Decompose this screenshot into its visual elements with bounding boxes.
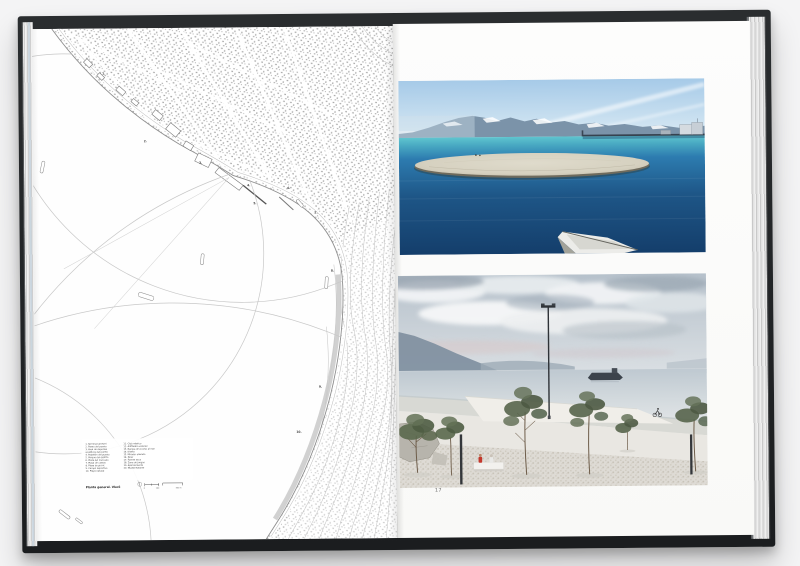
- svg-text:4.: 4.: [247, 183, 250, 187]
- svg-text:3.: 3.: [199, 161, 202, 165]
- map-caption: Planta general. Vlorë: [86, 485, 121, 489]
- svg-text:10.: 10.: [296, 430, 301, 434]
- svg-text:10. Playa natural: 10. Playa natural: [86, 470, 105, 473]
- person-red-jacket: [479, 457, 483, 463]
- left-page: 1.2.3.4.5.6.7.8.9.10. 1. Terminal del fe…: [32, 26, 397, 541]
- terminal-building: [680, 124, 693, 134]
- person-white-jacket: [490, 457, 494, 463]
- svg-text:8.: 8.: [331, 269, 334, 273]
- svg-text:2.: 2.: [144, 139, 147, 143]
- svg-text:6.: 6.: [287, 186, 290, 190]
- book: 1.2.3.4.5.6.7.8.9.10. 1. Terminal del fe…: [18, 10, 776, 554]
- svg-text:5.: 5.: [253, 201, 256, 205]
- lighthouse: [582, 130, 584, 136]
- right-page: 17: [393, 21, 754, 538]
- photo-promenade: [398, 273, 708, 488]
- svg-text:1.: 1.: [102, 72, 105, 76]
- svg-text:9.: 9.: [319, 385, 322, 389]
- legend-column-1: 1. Terminal del ferri2. Paseo del puerto…: [85, 443, 110, 473]
- photo-floating-island: [398, 78, 706, 255]
- haze: [399, 115, 475, 138]
- person-on-platform: [475, 154, 477, 156]
- page-number: 17: [435, 488, 442, 494]
- svg-text:7.: 7.: [314, 211, 317, 215]
- svg-text:20. Muelle flotante: 20. Muelle flotante: [124, 467, 145, 470]
- moored-ship: [661, 130, 671, 134]
- site-plan-map: 1.2.3.4.5.6.7.8.9.10. 1. Terminal del fe…: [32, 26, 397, 541]
- svg-text:500 m: 500 m: [176, 487, 182, 489]
